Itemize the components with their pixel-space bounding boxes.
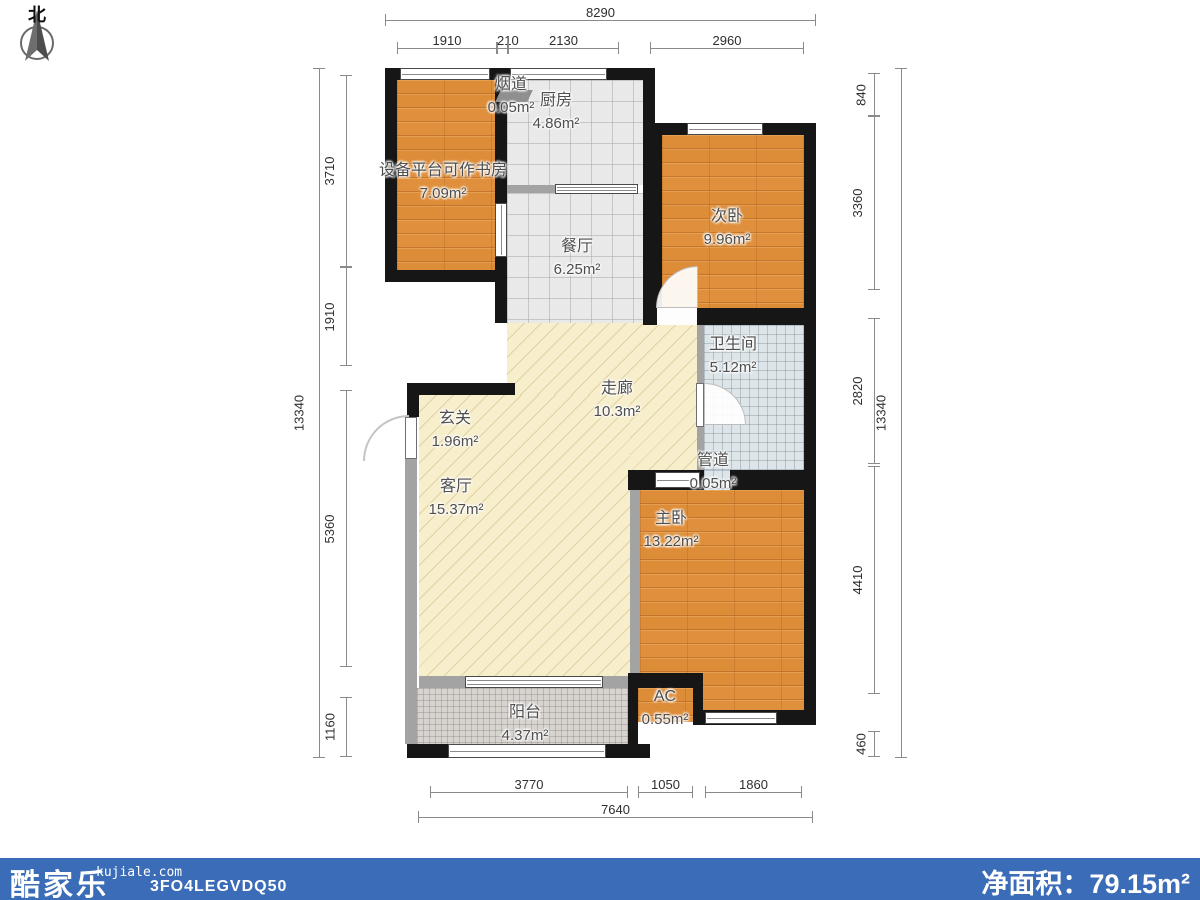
dim-label: 1860 bbox=[705, 777, 802, 792]
dim-label: 13340 bbox=[873, 395, 888, 431]
floorplan-page: 北 bbox=[0, 0, 1200, 900]
room-name: 卫生间 bbox=[690, 334, 776, 357]
dim-left-seg-2: 1910 bbox=[332, 267, 347, 366]
dim-top-seg-2: 210 bbox=[497, 34, 508, 49]
compass: 北 bbox=[8, 0, 66, 68]
room-label-kitchen: 厨房 4.86m² bbox=[516, 90, 596, 134]
room-name: 阳台 bbox=[485, 702, 565, 725]
room-label-bedroom2: 次卧 9.96m² bbox=[687, 206, 767, 250]
dim-label: 840 bbox=[854, 84, 869, 106]
door-leaf-bathroom bbox=[696, 383, 704, 427]
dim-top-total: 8290 bbox=[385, 6, 816, 21]
dim-label: 3770 bbox=[430, 777, 628, 792]
room-name: 次卧 bbox=[687, 206, 767, 229]
room-name: 设备平台可作书房 bbox=[363, 160, 523, 183]
dim-top-seg-4: 2960 bbox=[650, 34, 804, 49]
dim-label: 2960 bbox=[650, 33, 804, 48]
dim-right-seg-1: 840 bbox=[860, 73, 875, 116]
room-name: 走廊 bbox=[577, 378, 657, 401]
sliding-door-balcony bbox=[465, 676, 603, 688]
doorway-bedroom2 bbox=[657, 308, 697, 325]
room-label-pipe: 管道 0.05m² bbox=[673, 450, 753, 494]
dim-bottom-total: 7640 bbox=[418, 803, 813, 818]
dim-left-seg-4: 1160 bbox=[332, 697, 347, 757]
room-label-entry: 玄关 1.96m² bbox=[415, 408, 495, 452]
dim-bottom-seg-3: 1860 bbox=[705, 778, 802, 793]
dim-label: 1910 bbox=[397, 33, 497, 48]
room-name: 客厅 bbox=[413, 476, 499, 499]
dim-right-total: 13340 bbox=[887, 68, 902, 758]
room-label-dining: 餐厅 6.25m² bbox=[537, 236, 617, 280]
room-area: 0.55m² bbox=[625, 709, 705, 730]
net-area-label: 净面积： bbox=[981, 869, 1089, 899]
room-name: 餐厅 bbox=[537, 236, 617, 259]
dim-label: 4410 bbox=[850, 566, 865, 595]
dim-label: 7640 bbox=[418, 802, 813, 817]
room-name: 厨房 bbox=[516, 90, 596, 113]
room-area: 1.96m² bbox=[415, 431, 495, 452]
room-label-study: 设备平台可作书房 7.09m² bbox=[363, 160, 523, 204]
window-master-bottom bbox=[705, 712, 777, 724]
room-name: AC bbox=[625, 686, 705, 709]
net-area-value: 79.15m² bbox=[1089, 869, 1190, 899]
room-area: 10.3m² bbox=[577, 401, 657, 422]
window-dining-left bbox=[495, 203, 507, 257]
dim-label: 460 bbox=[854, 733, 869, 755]
dim-left-seg-1: 3710 bbox=[332, 75, 347, 267]
room-area: 4.86m² bbox=[516, 113, 596, 134]
room-name: 玄关 bbox=[415, 408, 495, 431]
wall-study-bottom bbox=[385, 270, 507, 282]
room-label-living: 客厅 15.37m² bbox=[413, 476, 499, 520]
room-area: 15.37m² bbox=[413, 499, 499, 520]
dim-bottom-seg-1: 3770 bbox=[430, 778, 628, 793]
window-balcony-bottom bbox=[448, 744, 606, 758]
room-label-bathroom: 卫生间 5.12m² bbox=[690, 334, 776, 378]
room-label-corridor: 走廊 10.3m² bbox=[577, 378, 657, 422]
room-name: 管道 bbox=[673, 450, 753, 473]
dim-bottom-seg-2: 1050 bbox=[638, 778, 693, 793]
dim-right-seg-2: 3360 bbox=[860, 116, 875, 290]
dim-right-seg-5: 460 bbox=[860, 731, 875, 757]
dim-label: 1160 bbox=[323, 713, 338, 741]
dim-label: 2820 bbox=[850, 377, 865, 406]
room-area: 13.22m² bbox=[631, 531, 711, 552]
room-area: 4.37m² bbox=[485, 725, 565, 746]
dim-label: 210 bbox=[497, 33, 508, 48]
room-area: 6.25m² bbox=[537, 259, 617, 280]
wall-right-outer bbox=[804, 123, 816, 725]
footer-bar: 酷家乐 kujiale.com 3FO4LEGVDQ50 净面积：79.15m² bbox=[0, 858, 1200, 900]
dim-label: 3710 bbox=[322, 157, 337, 186]
room-label-master: 主卧 13.22m² bbox=[631, 508, 711, 552]
room-area: 5.12m² bbox=[690, 357, 776, 378]
room-area: 9.96m² bbox=[687, 229, 767, 250]
sliding-door-kitchen bbox=[555, 184, 638, 194]
wall-entry-top bbox=[413, 383, 515, 395]
dim-label: 1050 bbox=[638, 777, 693, 792]
net-area: 净面积：79.15m² bbox=[981, 862, 1190, 900]
room-name: 主卧 bbox=[631, 508, 711, 531]
dim-label: 5360 bbox=[322, 514, 337, 543]
dim-right-seg-3: 2820 bbox=[860, 318, 875, 464]
door-arc-entry bbox=[363, 415, 409, 461]
dim-top-seg-1: 1910 bbox=[397, 34, 497, 49]
dim-top-seg-3: 2130 bbox=[508, 34, 619, 49]
plan-code: 3FO4LEGVDQ50 bbox=[150, 878, 287, 896]
dim-label: 13340 bbox=[291, 395, 306, 431]
room-area: 0.05m² bbox=[673, 473, 753, 494]
window-bedroom2-top bbox=[687, 123, 763, 135]
dim-label: 2130 bbox=[508, 33, 619, 48]
dim-left-total: 13340 bbox=[305, 68, 320, 758]
room-area: 7.09m² bbox=[363, 183, 523, 204]
room-label-balcony: 阳台 4.37m² bbox=[485, 702, 565, 746]
dim-right-seg-4: 4410 bbox=[860, 466, 875, 694]
room-label-ac: AC 0.55m² bbox=[625, 686, 705, 730]
dim-label: 8290 bbox=[385, 5, 816, 20]
dim-left-seg-3: 5360 bbox=[332, 390, 347, 667]
dim-label: 3360 bbox=[850, 189, 865, 218]
compass-north-label: 北 bbox=[28, 1, 46, 27]
dim-label: 1910 bbox=[322, 302, 337, 331]
brand-logo: 酷家乐 bbox=[10, 860, 109, 900]
